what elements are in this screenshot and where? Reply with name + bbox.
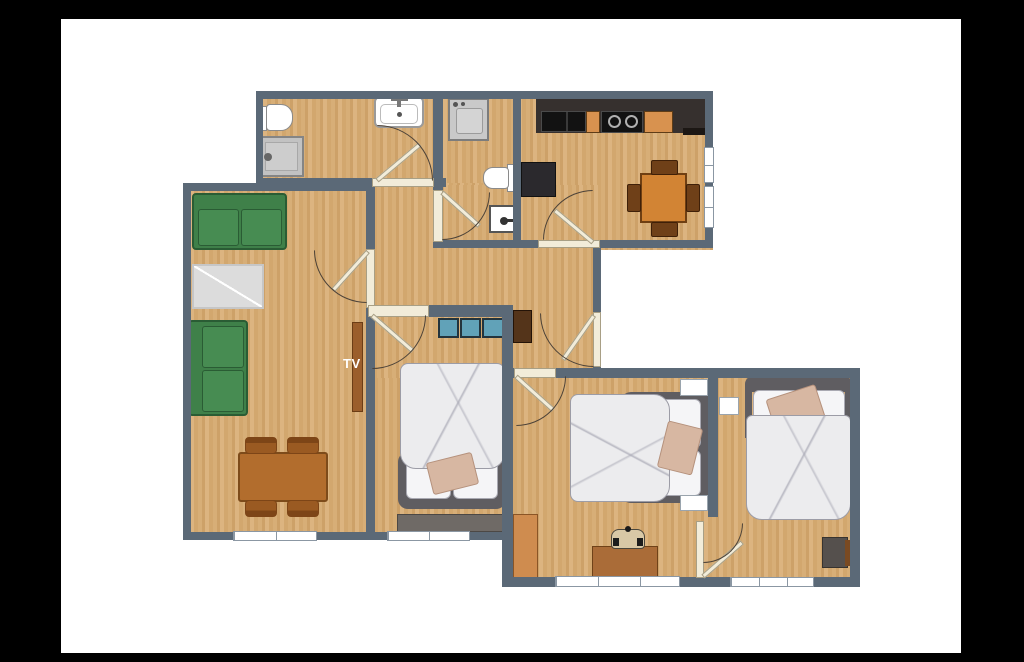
window [704,147,714,183]
refrigerator [521,162,556,197]
wall [502,305,513,587]
entrance-door-opening [593,312,601,367]
floor-plan-image: TV [0,0,1024,662]
dining-chair [245,500,277,517]
dining-chair [245,437,277,454]
nightstand [719,397,739,415]
sofa-cushion [202,370,244,412]
living-dining-table [238,452,328,502]
window [704,186,714,228]
kitchen-chair [651,160,678,175]
matte-top [0,0,1024,19]
matte-left [0,0,61,662]
washing-machine [448,98,489,141]
dining-chair [287,437,319,454]
nightstand [680,379,708,396]
drain-icon [397,112,402,117]
closet-door [482,318,504,338]
bed-duvet [570,394,670,502]
chair-knob [625,526,631,532]
sofa-cushion [202,326,244,368]
matte-right [961,0,1024,662]
stove-cooktop [601,111,643,133]
kitchen-table [640,173,687,223]
wall [183,183,373,191]
bed-duvet [400,363,505,469]
washer-knob [461,102,465,106]
chair-caster [637,538,643,546]
burner-icon [625,115,638,128]
tv-label: TV [343,356,369,371]
window [730,577,814,587]
window [387,531,470,541]
dining-chair [287,500,319,517]
wall [183,183,191,540]
desk [592,546,658,577]
sofa-top [192,193,287,250]
wall [256,91,263,186]
sofa-cushion [198,209,239,246]
nightstand [680,495,708,511]
kitchen-chair [627,184,641,212]
wall [850,368,860,587]
washer-drum [456,108,483,134]
kitchen-cabinet [644,111,673,133]
burner-icon [608,115,621,128]
kitchen-sink [541,111,586,132]
kitchen-cabinet [586,111,600,133]
kitchen-chair [686,184,700,212]
hallway-cabinet [513,310,532,343]
washer-knob [453,102,458,107]
wall [513,91,521,248]
matte-bottom [0,653,1024,662]
sofa-left [188,320,248,416]
washbasin [374,96,424,128]
window [233,531,317,541]
shower-head-icon [264,153,272,161]
toilet-bowl [266,104,293,131]
sofa-cushion [241,209,282,246]
toilet-bowl [483,167,509,189]
closet-door [438,318,459,338]
door-opening [366,249,375,308]
dresser [397,514,505,532]
faucet-stem [397,98,401,107]
window [555,576,680,587]
kitchen-chair [651,222,678,237]
rug [192,264,264,309]
closet-door [460,318,481,338]
desk-chair [611,529,645,549]
wall [256,91,713,99]
bed-duvet [746,415,851,520]
shower [259,136,304,177]
wardrobe [513,514,538,578]
chair-caster [613,538,619,546]
wall [708,368,718,517]
